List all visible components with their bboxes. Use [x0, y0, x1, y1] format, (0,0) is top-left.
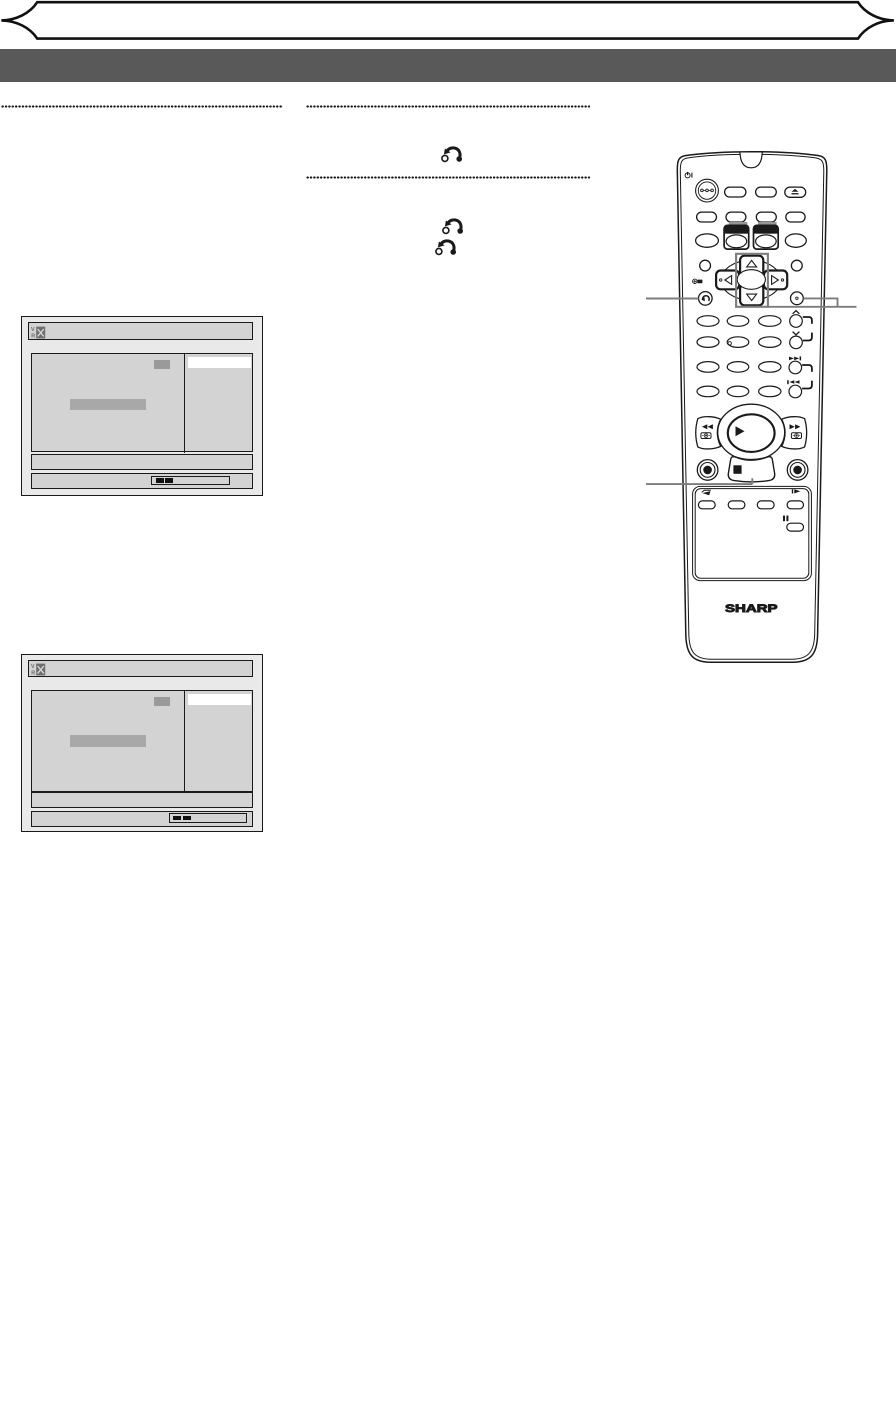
svg-text:R: R [31, 333, 35, 338]
svg-text:V: V [31, 327, 35, 333]
svg-text:V: V [31, 664, 35, 670]
svg-text:SHARP: SHARP [725, 603, 778, 615]
svg-text:R: R [31, 670, 35, 675]
